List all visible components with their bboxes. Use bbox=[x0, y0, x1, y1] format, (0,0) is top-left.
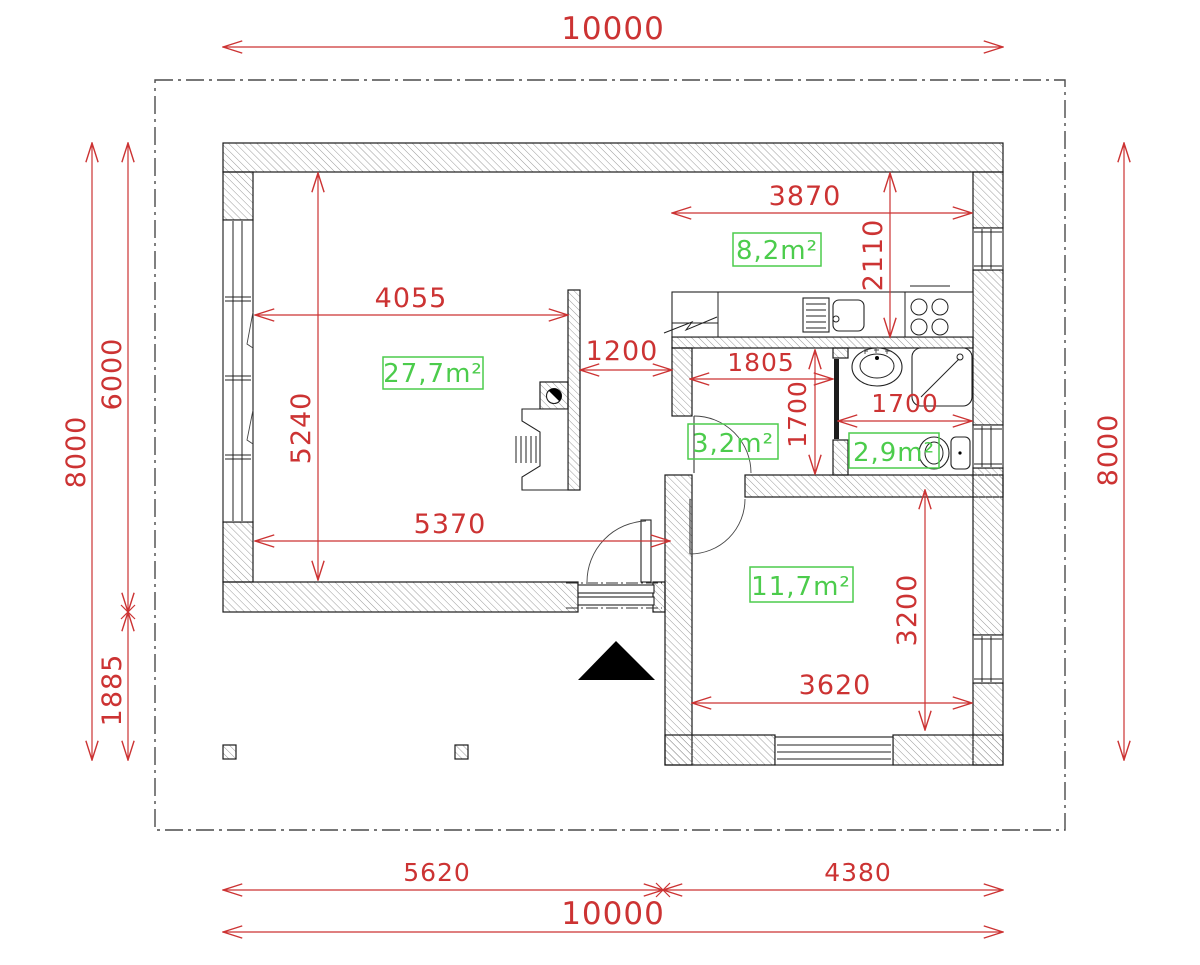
svg-text:4380: 4380 bbox=[824, 858, 892, 887]
svg-text:2110: 2110 bbox=[858, 219, 889, 292]
window-bedroom-right bbox=[973, 635, 1003, 683]
window-left bbox=[223, 220, 253, 522]
wall-bedroom-left bbox=[665, 475, 692, 765]
wash-basin bbox=[852, 348, 902, 386]
svg-text:3620: 3620 bbox=[799, 670, 872, 701]
wall-hall-bath-bottom bbox=[833, 440, 848, 475]
dim-opening-width: 1200 bbox=[580, 336, 672, 370]
wall-bedroom-bottom-right bbox=[893, 735, 1003, 765]
svg-text:5370: 5370 bbox=[414, 509, 487, 540]
room-label-bedroom: 11,7m² bbox=[750, 567, 853, 602]
bathroom-door-leaf bbox=[834, 359, 839, 439]
basin-faucet bbox=[875, 356, 879, 360]
wall-hall-left bbox=[672, 348, 692, 416]
wall-bedroom-top bbox=[745, 475, 1003, 497]
room-label-living: 27,7m² bbox=[383, 357, 483, 389]
wall-top bbox=[223, 143, 1003, 172]
bath-area-value: 2,9m² bbox=[853, 438, 935, 468]
svg-text:8000: 8000 bbox=[61, 416, 92, 489]
window-bathroom bbox=[973, 425, 1003, 468]
svg-text:5620: 5620 bbox=[403, 858, 471, 887]
porch-post-1 bbox=[223, 745, 236, 759]
porch-post-2 bbox=[455, 745, 468, 759]
svg-text:1885: 1885 bbox=[97, 654, 128, 727]
svg-text:10000: 10000 bbox=[561, 896, 665, 932]
room-label-kitchen: 8,2m² bbox=[733, 233, 821, 266]
svg-text:8000: 8000 bbox=[1093, 414, 1124, 487]
svg-text:1700: 1700 bbox=[871, 389, 939, 418]
wall-right-1 bbox=[973, 172, 1003, 228]
window-kitchen bbox=[973, 228, 1003, 270]
kitchen-area-value: 8,2m² bbox=[736, 236, 818, 266]
svg-text:4055: 4055 bbox=[375, 283, 448, 314]
wall-bottom-living bbox=[223, 582, 578, 612]
room-label-bath: 2,9m² bbox=[849, 433, 939, 468]
floor-plan-canvas: 27,7m² 8,2m² 3,2m² 2,9m² 11,7m² 10000 10… bbox=[0, 0, 1200, 960]
wall-right-2 bbox=[973, 270, 1003, 425]
entrance-threshold-inner bbox=[578, 597, 654, 605]
floor-plan-page: 27,7m² 8,2m² 3,2m² 2,9m² 11,7m² 10000 10… bbox=[0, 0, 1200, 960]
living-area-value: 27,7m² bbox=[383, 359, 483, 389]
wall-left-upper bbox=[223, 172, 253, 220]
entrance-door-leaf bbox=[641, 520, 651, 582]
svg-text:10000: 10000 bbox=[561, 11, 665, 47]
entrance-threshold-outer bbox=[578, 585, 654, 593]
svg-text:1805: 1805 bbox=[727, 348, 795, 377]
wall-hall-bath-top bbox=[833, 348, 848, 358]
svg-text:6000: 6000 bbox=[97, 338, 128, 411]
hall-area-value: 3,2m² bbox=[692, 429, 774, 459]
room-label-hall: 3,2m² bbox=[688, 424, 778, 459]
wall-bedroom-bottom-left bbox=[665, 735, 775, 765]
wall-living-partition bbox=[568, 290, 580, 490]
window-bedroom-bottom bbox=[775, 737, 893, 765]
wall-right-3 bbox=[973, 468, 1003, 635]
svg-text:3870: 3870 bbox=[769, 181, 842, 212]
bedroom-area-value: 11,7m² bbox=[751, 572, 851, 602]
svg-text:1700: 1700 bbox=[783, 380, 812, 448]
svg-text:5240: 5240 bbox=[286, 392, 317, 465]
svg-text:1200: 1200 bbox=[586, 336, 659, 367]
kitchen-sink bbox=[803, 298, 864, 332]
wall-left-lower bbox=[223, 522, 253, 582]
svg-text:3200: 3200 bbox=[892, 574, 923, 647]
wall-kitchen-hall bbox=[672, 337, 973, 348]
